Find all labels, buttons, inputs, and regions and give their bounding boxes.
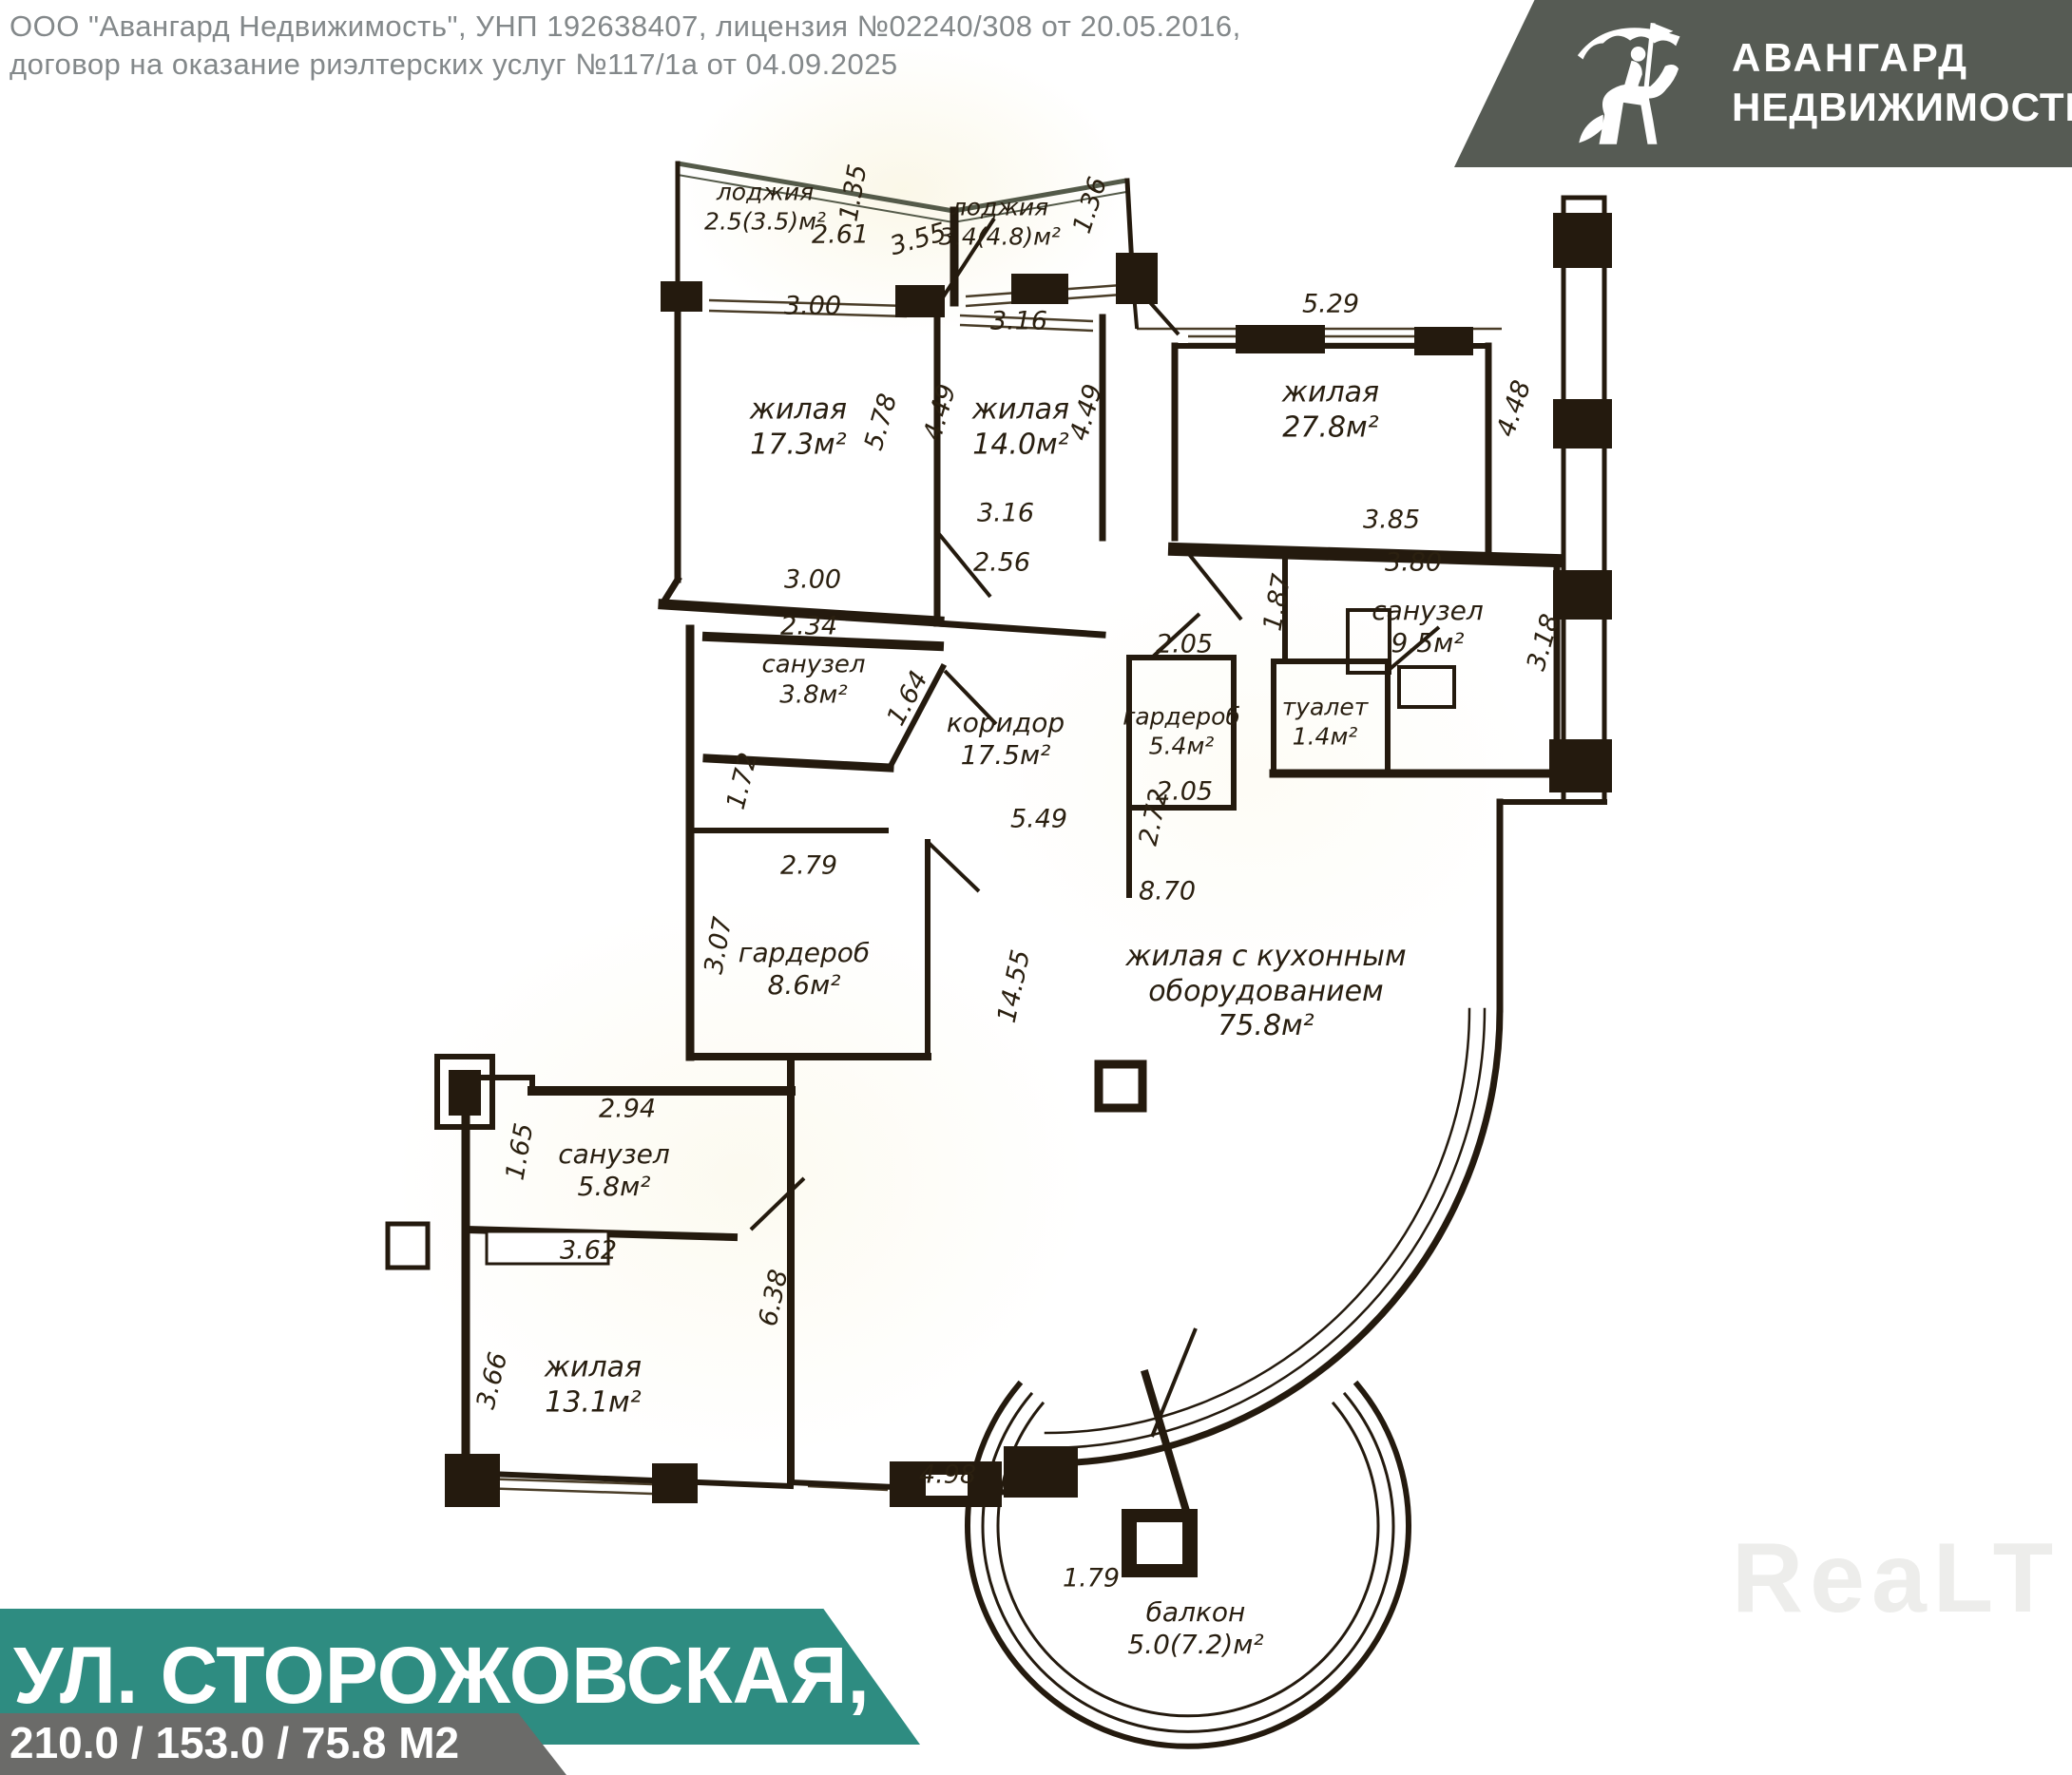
areas-banner: 210.0 / 153.0 / 75.8 М2 (0, 1713, 566, 1775)
areas-text: 210.0 / 153.0 / 75.8 М2 (10, 1713, 459, 1773)
walls (466, 163, 1604, 1746)
loggia-roof-lines (678, 163, 1126, 222)
wall-piers (445, 213, 1612, 1577)
window-lines (480, 285, 1502, 1494)
column (1099, 1064, 1142, 1108)
floorplan-sheet: ООО "Авангард Недвижимость", УНП 1926384… (0, 0, 2072, 1775)
floorplan-drawing (0, 0, 2072, 1775)
realt-watermark: ReaLT (1732, 1522, 2060, 1635)
